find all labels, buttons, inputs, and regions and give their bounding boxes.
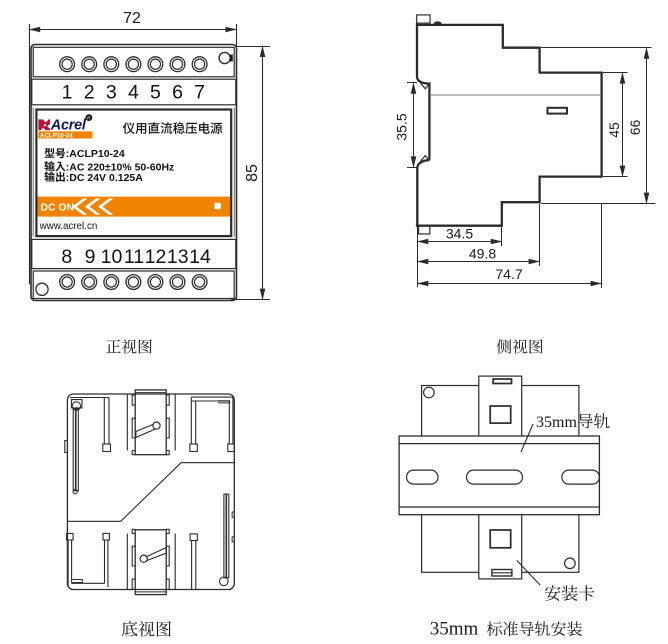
- svg-text:1: 1: [62, 82, 73, 104]
- svg-text:www.acrel.cn: www.acrel.cn: [39, 221, 98, 232]
- svg-text:8: 8: [61, 246, 72, 268]
- svg-text:74.7: 74.7: [495, 266, 522, 282]
- svg-text:72: 72: [123, 10, 141, 27]
- svg-text:45: 45: [606, 122, 622, 138]
- svg-text:11: 11: [124, 246, 144, 268]
- svg-text::DC 24V 0.125A: :DC 24V 0.125A: [66, 172, 143, 184]
- svg-text:4: 4: [128, 82, 139, 104]
- svg-text:34.5: 34.5: [446, 226, 473, 242]
- svg-text:85: 85: [244, 164, 261, 182]
- svg-text:5: 5: [150, 82, 161, 104]
- svg-text:35mm: 35mm: [536, 414, 577, 431]
- svg-text:14: 14: [189, 246, 211, 268]
- svg-text:Acrel: Acrel: [50, 117, 87, 133]
- svg-text:35mm: 35mm: [430, 619, 479, 640]
- svg-text:12: 12: [145, 246, 167, 268]
- svg-text::ACLP10-24: :ACLP10-24: [66, 148, 125, 160]
- svg-text:6: 6: [172, 82, 183, 104]
- svg-text:ACLP10-24: ACLP10-24: [40, 132, 73, 139]
- svg-text:2: 2: [84, 82, 95, 104]
- svg-text:35.5: 35.5: [394, 113, 410, 140]
- svg-text:3: 3: [106, 82, 117, 104]
- svg-text:66: 66: [627, 120, 643, 136]
- svg-text:DC ON: DC ON: [41, 202, 74, 213]
- svg-text:13: 13: [167, 246, 189, 268]
- svg-text:49.8: 49.8: [469, 245, 496, 261]
- svg-text:9: 9: [85, 246, 96, 268]
- svg-text:10: 10: [101, 246, 123, 268]
- svg-text:7: 7: [194, 82, 205, 104]
